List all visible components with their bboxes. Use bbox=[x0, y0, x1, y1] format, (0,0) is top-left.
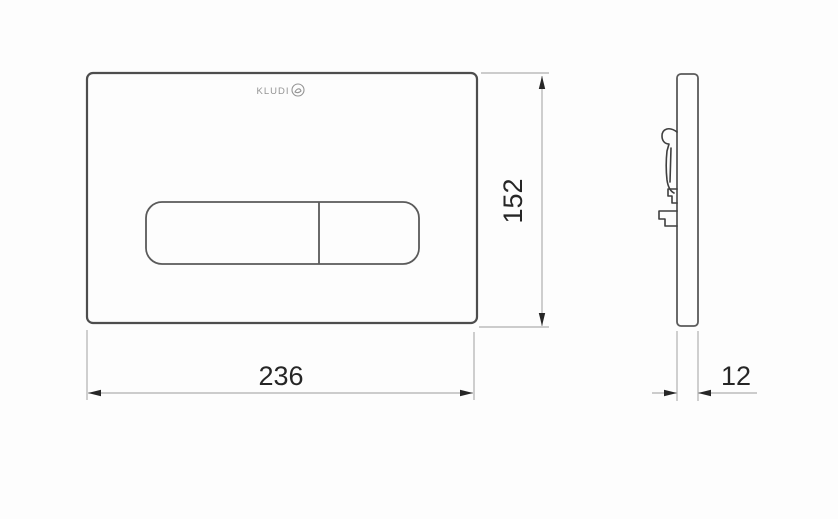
height-dimension-label: 152 bbox=[498, 178, 528, 223]
brand-logo-text: KLUDI bbox=[257, 86, 290, 97]
brand-logo-emblem-icon bbox=[292, 84, 304, 96]
height-dimension: 152 bbox=[479, 73, 549, 327]
flush-plate-dimension-drawing: KLUDI 236 bbox=[0, 0, 838, 519]
width-dimension-label: 236 bbox=[258, 361, 303, 391]
mounting-clip-outline bbox=[659, 211, 677, 226]
height-arrowhead-bottom-icon bbox=[539, 313, 545, 326]
depth-dimension-label: 12 bbox=[721, 361, 751, 391]
logo-emblem-circle bbox=[292, 84, 304, 96]
width-arrowhead-left-icon bbox=[88, 390, 101, 396]
height-arrowhead-top-icon bbox=[539, 76, 545, 89]
flush-button-panel-outline bbox=[146, 202, 419, 264]
mounting-hook-inner-line bbox=[670, 148, 671, 182]
side-plate-profile bbox=[677, 74, 698, 326]
front-view: KLUDI bbox=[87, 73, 477, 323]
mounting-hook-outline bbox=[662, 129, 677, 193]
logo-emblem-mark bbox=[295, 89, 301, 93]
width-arrowhead-right-icon bbox=[460, 390, 473, 396]
technical-drawing-canvas: KLUDI 236 bbox=[0, 0, 838, 519]
depth-dimension: 12 bbox=[652, 331, 757, 401]
width-dimension: 236 bbox=[87, 330, 474, 400]
depth-arrowhead-right-icon bbox=[698, 390, 711, 396]
depth-arrowhead-left-icon bbox=[664, 390, 677, 396]
side-view bbox=[659, 74, 698, 326]
front-plate-outline bbox=[87, 73, 477, 323]
